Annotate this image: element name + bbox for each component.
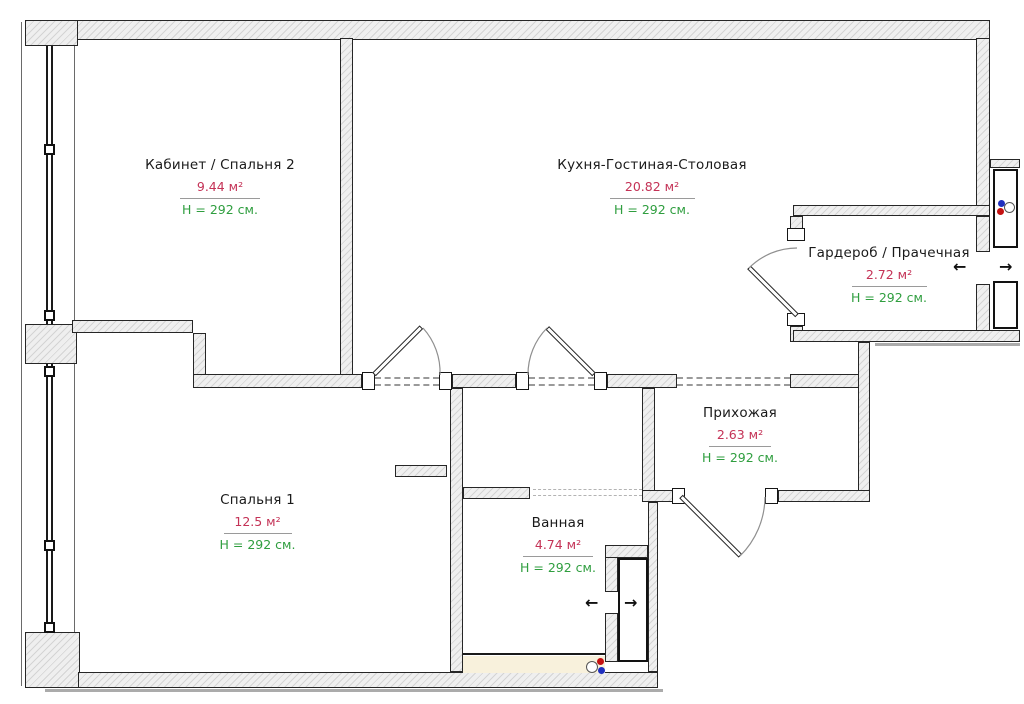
room-name: Спальня 1 <box>180 492 335 508</box>
vent-arrow-right-icon: → <box>999 259 1012 275</box>
wall-wardrobe-right-lower <box>976 284 990 332</box>
cold-water-dot <box>598 667 605 674</box>
room-label-office: Кабинет / Спальня 2 9.44 м² H = 292 см. <box>115 157 325 217</box>
door-threshold <box>375 377 439 379</box>
room-label-hallway: Прихожая 2.63 м² H = 292 см. <box>665 405 815 465</box>
bathroom-floor-strip <box>463 656 605 673</box>
room-area: 4.74 м² <box>490 537 626 552</box>
window-mullion <box>44 540 55 551</box>
wall-kitchen-bottom-b <box>607 374 677 388</box>
room-height: H = 292 см. <box>490 560 626 575</box>
door-leaf-wardrobe <box>747 266 799 318</box>
bathroom-threshold <box>533 489 642 490</box>
wall-office-bottom <box>72 320 193 333</box>
wall-wardrobe-bottom <box>793 330 1020 342</box>
wall-hallway-bottom-right <box>778 490 870 502</box>
door-jamb <box>765 488 778 504</box>
window-outer-line <box>21 22 22 686</box>
riser-ring-icon <box>1004 202 1015 213</box>
wall-corner-top-left <box>25 20 78 46</box>
label-divider <box>852 286 927 287</box>
door-leaf-bedroom1 <box>372 325 423 376</box>
room-name: Ванная <box>490 515 626 531</box>
door-jamb <box>362 372 375 390</box>
wall-wardrobe-top <box>793 205 990 216</box>
door-threshold <box>529 377 594 379</box>
label-divider <box>180 198 260 199</box>
room-height: H = 292 см. <box>800 290 978 305</box>
wall-right-top <box>976 38 990 216</box>
wall-hallway-right <box>858 342 870 502</box>
room-area: 2.63 м² <box>665 427 815 442</box>
label-divider <box>523 556 593 557</box>
wall-bathroom-right-lower <box>605 613 618 662</box>
wall-bathroom-stub <box>463 487 530 499</box>
wall-bedroom-stub <box>395 465 447 477</box>
vent-arrow-left-icon: ← <box>585 595 598 611</box>
riser-ring-icon <box>586 661 598 673</box>
room-height: H = 292 см. <box>543 202 761 217</box>
wall-kitchen-bottom-pier <box>452 374 516 388</box>
room-name: Гардероб / Прачечная <box>800 245 978 261</box>
room-label-bedroom1: Спальня 1 12.5 м² H = 292 см. <box>180 492 335 552</box>
hallway-opening <box>677 384 790 386</box>
floor-plan: ← → ← → Кабинет / Спальня 2 9.44 м² H = … <box>0 0 1024 704</box>
vent-arrow-right-icon: → <box>624 595 637 611</box>
label-divider <box>224 533 292 534</box>
door-jamb <box>439 372 452 390</box>
label-divider <box>709 446 771 447</box>
wall-kitchen-bottom-a <box>193 374 362 388</box>
door-jamb <box>787 228 805 241</box>
door-leaf-bathroom <box>546 326 596 376</box>
window-mullion <box>44 310 55 321</box>
room-height: H = 292 см. <box>115 202 325 217</box>
room-area: 9.44 м² <box>115 179 325 194</box>
wall-bathroom-left <box>450 388 463 672</box>
door-leaf-entrance <box>679 495 742 558</box>
label-divider <box>610 198 695 199</box>
door-jamb <box>516 372 529 390</box>
window-mullion <box>44 622 55 633</box>
room-area: 2.72 м² <box>800 267 978 282</box>
bathroom-floor-edge <box>463 653 605 655</box>
room-name: Прихожая <box>665 405 815 421</box>
wall-corner-bottom-left <box>25 632 80 688</box>
door-threshold <box>375 384 439 386</box>
wall-wardrobe-right-upper <box>976 216 990 252</box>
window-mullion <box>44 366 55 377</box>
room-name: Кухня-Гостиная-Столовая <box>543 157 761 173</box>
room-name: Кабинет / Спальня 2 <box>115 157 325 173</box>
door-jamb <box>594 372 607 390</box>
hallway-opening <box>677 377 790 379</box>
wall-shadow <box>875 343 1020 346</box>
hot-water-dot <box>597 658 604 665</box>
wall-office-kitchen <box>340 38 353 376</box>
wall-shadow <box>45 689 663 692</box>
wall-hallway-left <box>642 388 655 502</box>
room-label-wardrobe: Гардероб / Прачечная 2.72 м² H = 292 см. <box>800 245 978 305</box>
room-height: H = 292 см. <box>665 450 815 465</box>
window-mullion <box>44 144 55 155</box>
door-swing-arcs <box>0 0 1024 704</box>
wall-bottom <box>78 672 658 688</box>
door-threshold <box>529 384 594 386</box>
wall-shaft-right <box>648 502 658 672</box>
room-area: 12.5 м² <box>180 514 335 529</box>
room-area: 20.82 м² <box>543 179 761 194</box>
wall-left-pier <box>25 324 77 364</box>
room-height: H = 292 см. <box>180 537 335 552</box>
room-label-kitchen: Кухня-Гостиная-Столовая 20.82 м² H = 292… <box>543 157 761 217</box>
hot-water-dot <box>997 208 1004 215</box>
wall-right-stub <box>990 159 1020 168</box>
wall-top <box>25 20 990 40</box>
bathroom-threshold <box>533 495 642 496</box>
riser-shaft-lower <box>993 281 1018 329</box>
room-label-bathroom: Ванная 4.74 м² H = 292 см. <box>490 515 626 575</box>
wall-office-step <box>193 333 206 377</box>
